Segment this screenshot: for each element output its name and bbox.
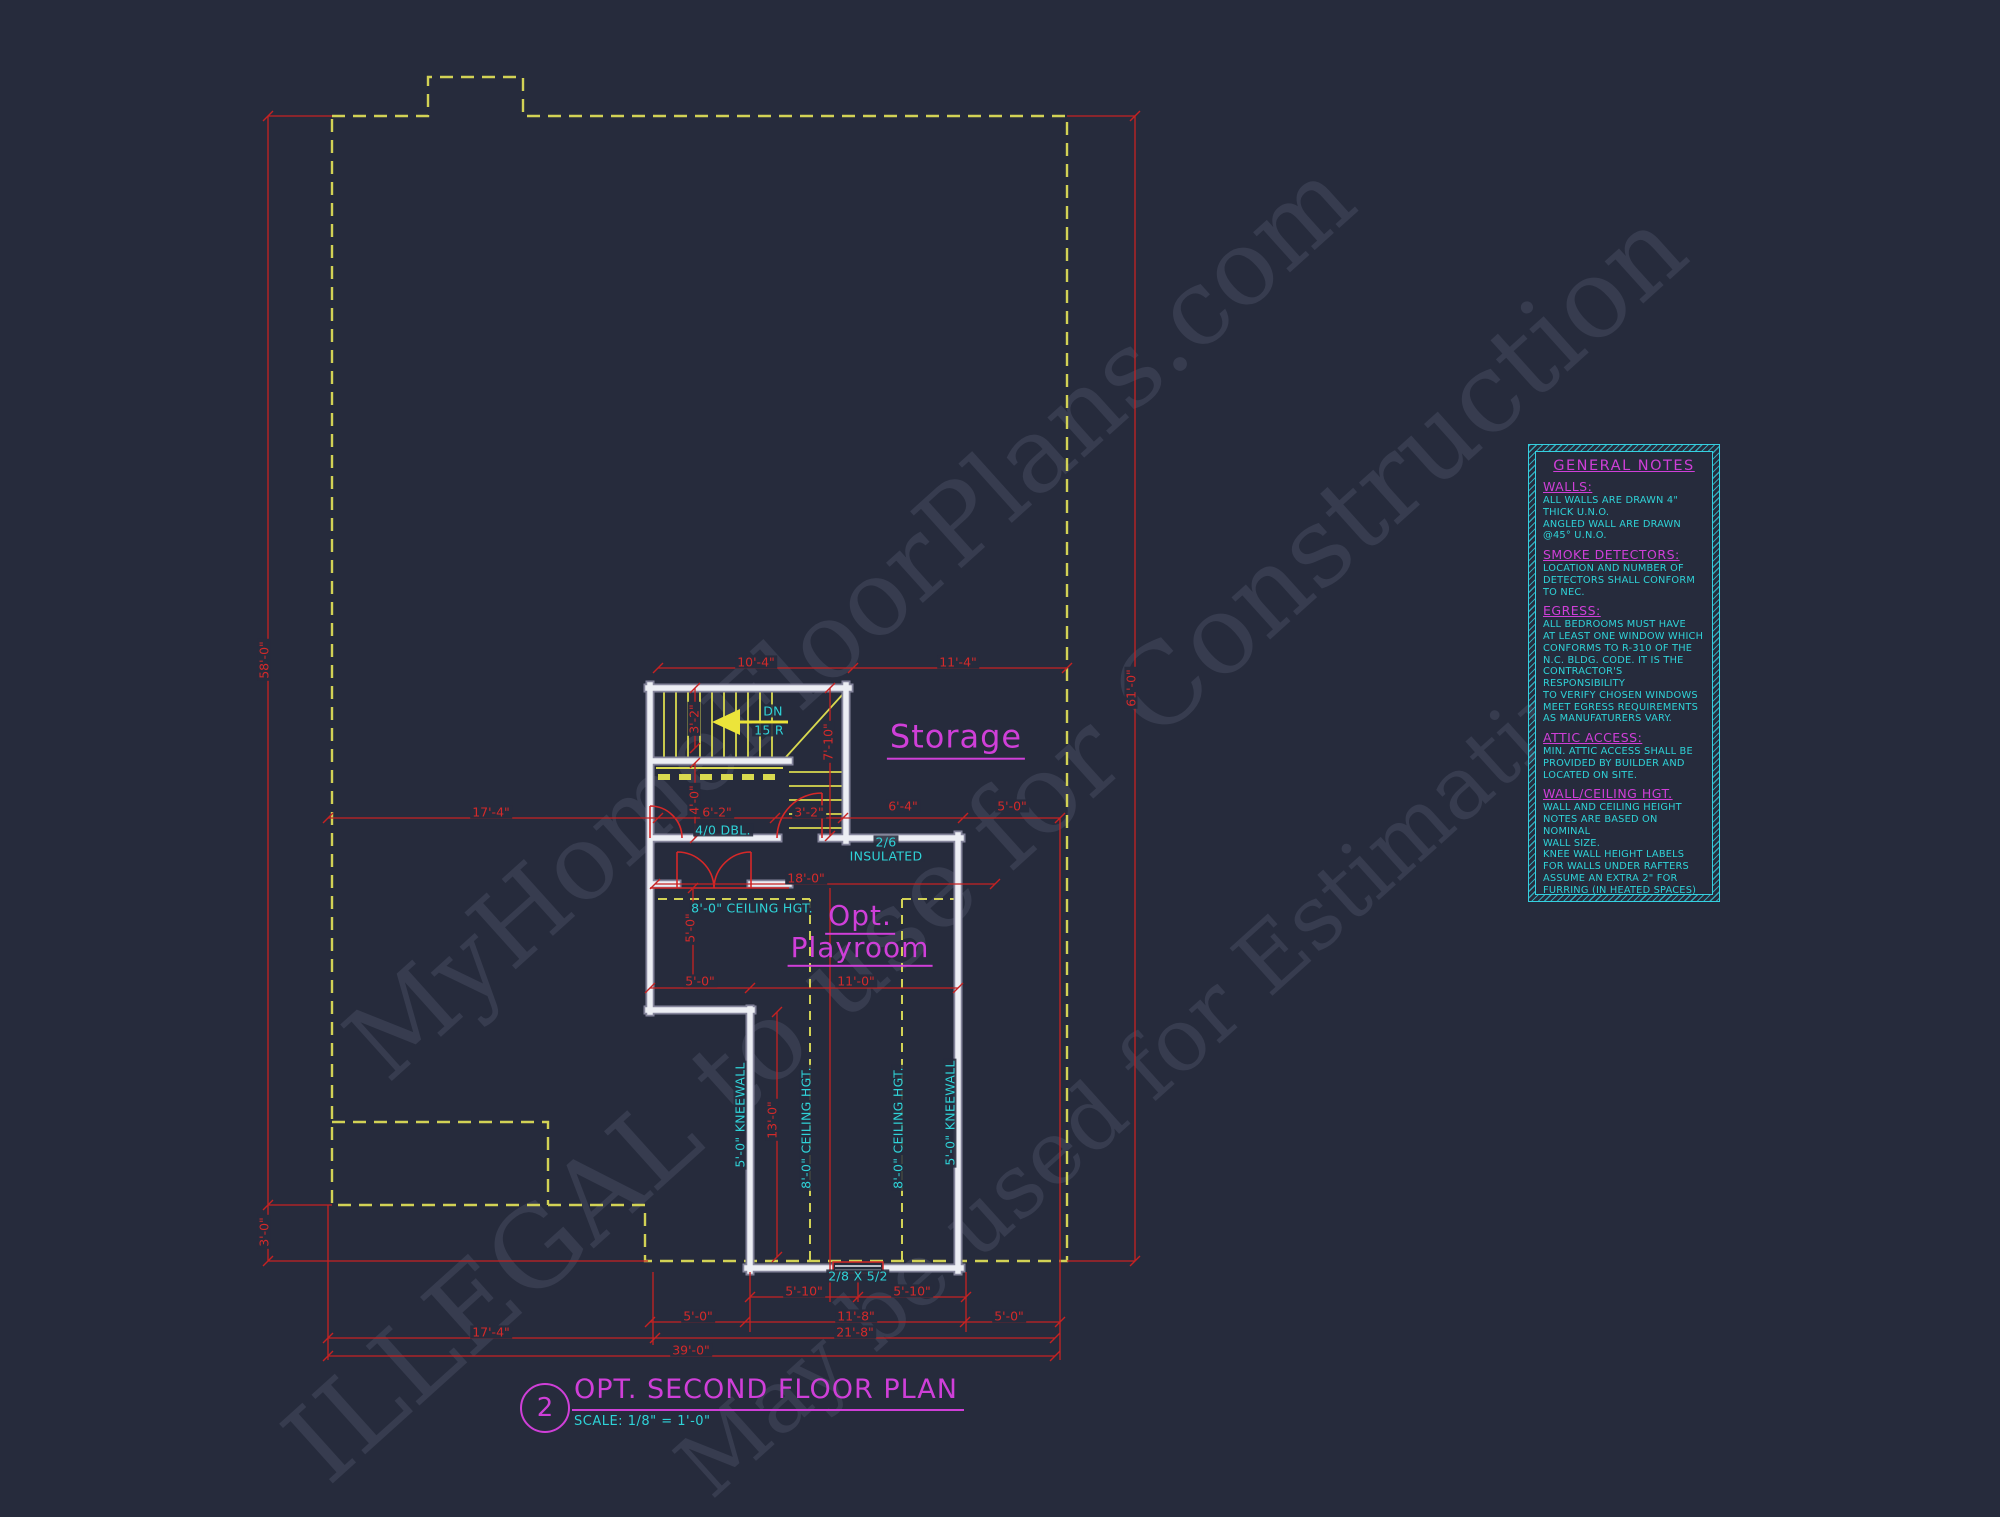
dimension-label: 21'-8" <box>834 1325 876 1338</box>
note-section-heading: SMOKE DETECTORS: <box>1543 547 1705 562</box>
dimension-label: 5'-10" <box>891 1284 933 1297</box>
annotation-label: 5'-0" KNEEWALL <box>943 1058 956 1167</box>
dimension-label: 5'-0" <box>683 974 717 987</box>
dimension-label: 7'-10" <box>821 721 834 763</box>
annotation-label: INSULATED <box>848 849 925 862</box>
dimension-label: 61'-0" <box>1124 667 1137 709</box>
annotation-label: 8'-0" CEILING HGT. <box>689 901 815 914</box>
note-section-heading: EGRESS: <box>1543 603 1705 618</box>
dimension-label: 3'-0" <box>257 1215 270 1249</box>
dimension-label: 5'-10" <box>783 1284 825 1297</box>
general-notes-inner: GENERAL NOTES WALLS:ALL WALLS ARE DRAWN … <box>1535 451 1713 895</box>
dimension-label: 6'-4" <box>886 799 920 812</box>
room-label: Storage <box>887 721 1025 760</box>
plan-number: 2 <box>537 1393 554 1423</box>
plan-scale: SCALE: 1/8" = 1'-0" <box>574 1414 711 1429</box>
annotation-label: 5'-0" KNEEWALL <box>733 1060 746 1169</box>
dimension-label: 11'-8" <box>835 1309 877 1322</box>
annotation-label: 15 R <box>752 723 786 736</box>
plan-number-circle: 2 <box>520 1383 570 1433</box>
dimension-label: 3'-2" <box>792 805 826 818</box>
dimension-label: 5'-0" <box>992 1309 1026 1322</box>
note-section-body: ALL BEDROOMS MUST HAVE AT LEAST ONE WIND… <box>1543 619 1705 725</box>
annotation-label: 2/6 <box>873 835 898 848</box>
general-notes-panel: GENERAL NOTES WALLS:ALL WALLS ARE DRAWN … <box>1528 444 1720 902</box>
dimension-label: 5'-0" <box>683 911 696 945</box>
dimension-label: 58'-0" <box>257 639 270 681</box>
annotation-label: 8'-0" CEILING HGT. <box>799 1065 812 1191</box>
notes-body: WALLS:ALL WALLS ARE DRAWN 4" THICK U.N.O… <box>1543 479 1705 895</box>
note-section-body: WALL AND CEILING HEIGHT NOTES ARE BASED … <box>1543 802 1705 895</box>
annotation-label: 4/0 DBL. <box>693 823 753 836</box>
dimension-label: 13'-0" <box>765 1099 778 1141</box>
dimension-label: 17'-4" <box>470 1325 512 1338</box>
dimension-label: 4'-0" <box>687 783 700 817</box>
notes-title: GENERAL NOTES <box>1543 458 1705 474</box>
note-section-heading: ATTIC ACCESS: <box>1543 730 1705 745</box>
dimension-label: 11'-0" <box>835 974 877 987</box>
dimension-label: 5'-0" <box>681 1309 715 1322</box>
note-section-heading: WALL/CEILING HGT. <box>1543 786 1705 801</box>
dimension-label: 18'-0" <box>785 871 827 884</box>
plan-title: OPT. SECOND FLOOR PLAN <box>572 1374 964 1411</box>
annotation-label: 2/8 X 5/2 <box>826 1269 889 1282</box>
dimension-label: 11'-4" <box>937 655 979 668</box>
dimension-label: 10'-4" <box>735 655 777 668</box>
dimension-label: 39'-0" <box>670 1343 712 1356</box>
room-label: Playroom <box>788 933 933 967</box>
stair-knee-wall-band <box>656 768 783 777</box>
annotation-label: 8'-0" CEILING HGT. <box>891 1065 904 1191</box>
note-section-body: LOCATION AND NUMBER OF DETECTORS SHALL C… <box>1543 563 1705 598</box>
dimension-label: 6'-2" <box>700 805 734 818</box>
dimension-label: 17'-4" <box>470 805 512 818</box>
note-section-heading: WALLS: <box>1543 479 1705 494</box>
dimension-label: 3'-2" <box>687 702 700 736</box>
annotation-label: DN <box>761 704 785 717</box>
note-section-body: MIN. ATTIC ACCESS SHALL BE PROVIDED BY B… <box>1543 746 1705 781</box>
note-section-body: ALL WALLS ARE DRAWN 4" THICK U.N.O. ANGL… <box>1543 495 1705 542</box>
dimension-label: 5'-0" <box>995 799 1029 812</box>
